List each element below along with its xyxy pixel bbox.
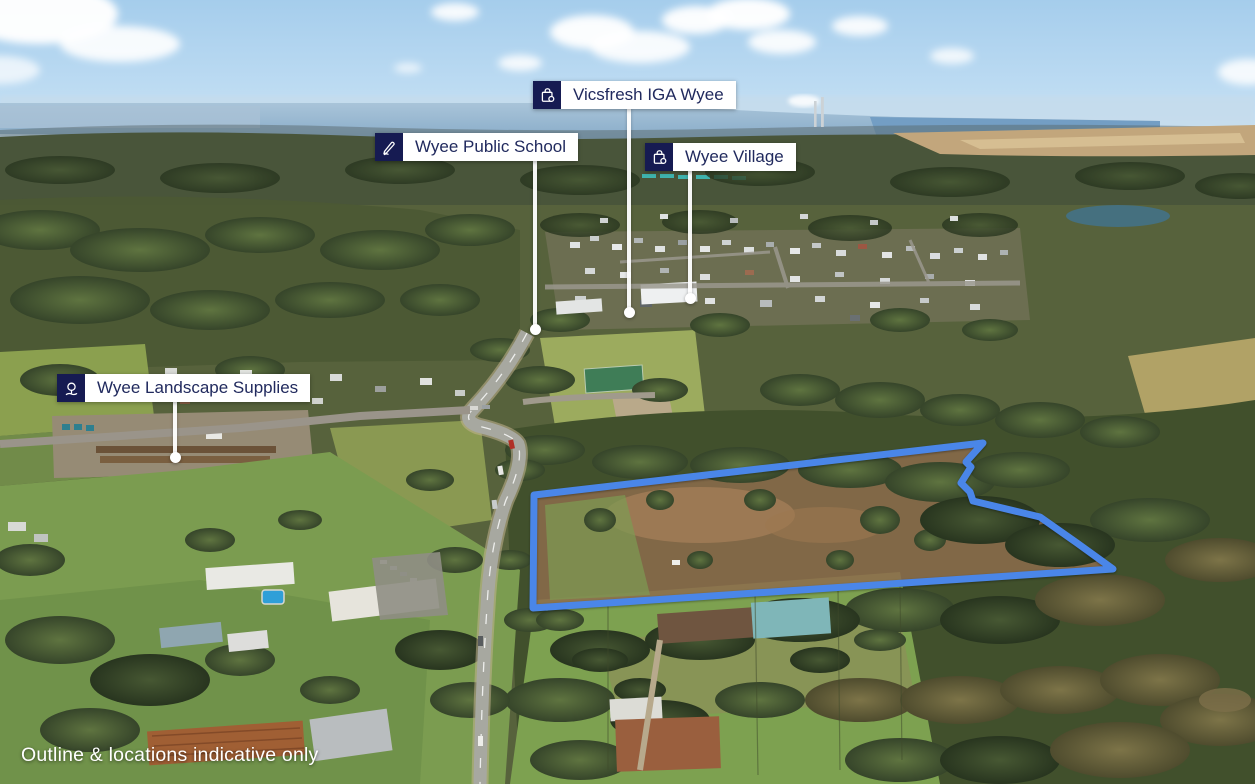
tree-icon: [57, 374, 85, 402]
label-wyee-village: Wyee Village: [645, 143, 796, 171]
leader-line-landscape: [173, 401, 177, 458]
shopping-bag-icon: [533, 81, 561, 109]
location-dot-iga: [624, 307, 635, 318]
label-wyee-landscape-supplies: Wyee Landscape Supplies: [57, 374, 310, 402]
disclaimer-text: Outline & locations indicative only: [21, 744, 319, 767]
location-dot-school: [530, 324, 541, 335]
label-vicsfresh-iga-wyee: Vicsfresh IGA Wyee: [533, 81, 736, 109]
pencil-icon: [375, 133, 403, 161]
aerial-photo: Vicsfresh IGA Wyee Wyee Public School Wy…: [0, 0, 1255, 784]
label-text: Vicsfresh IGA Wyee: [561, 81, 736, 109]
location-dot-village: [685, 293, 696, 304]
label-text: Wyee Village: [673, 143, 796, 171]
shopping-bag-icon: [645, 143, 673, 171]
label-wyee-public-school: Wyee Public School: [375, 133, 578, 161]
leader-line-village: [688, 170, 692, 299]
label-text: Wyee Landscape Supplies: [85, 374, 310, 402]
label-text: Wyee Public School: [403, 133, 578, 161]
location-dot-landscape: [170, 452, 181, 463]
leader-line-school: [533, 160, 537, 330]
leader-line-iga: [627, 108, 631, 313]
